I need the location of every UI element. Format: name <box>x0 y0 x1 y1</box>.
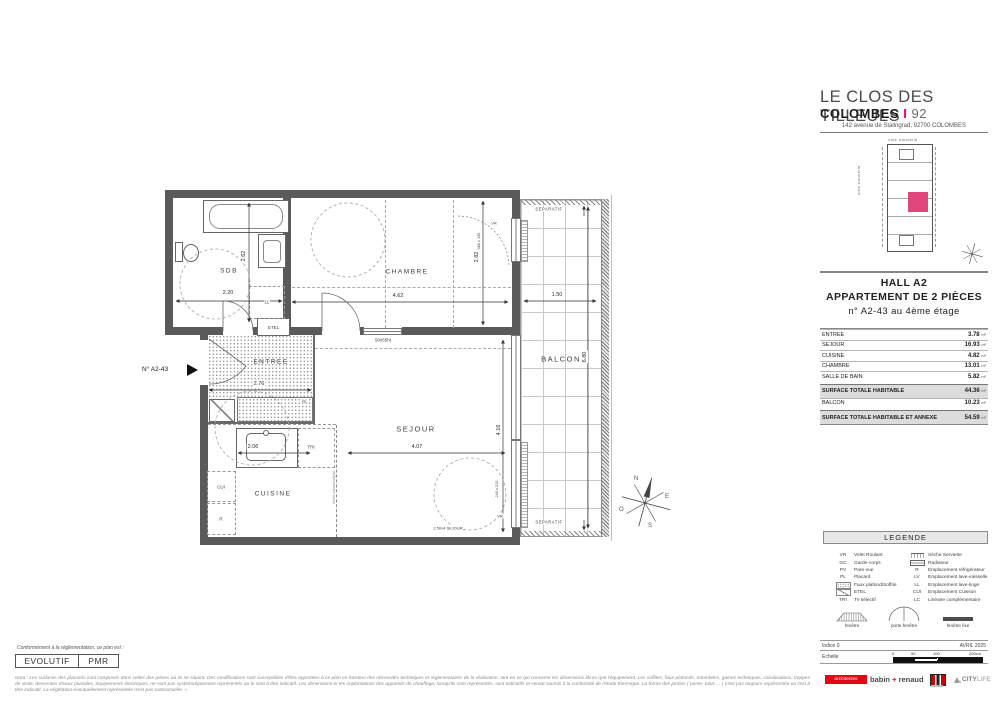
city-name: COLOMBES <box>820 106 899 121</box>
room-label-cuisine: CUISINE <box>255 491 292 498</box>
row-label: CHAMBRE <box>822 363 850 369</box>
tag-vr: VR <box>491 221 498 226</box>
table-row-total: SURFACE TOTALE HABITABLE ET ANNEXE54.59 … <box>820 410 988 424</box>
plan-sheet: ETEL <box>0 0 1000 707</box>
room-label-balcon: BALCON <box>541 355 581 364</box>
scale-bar: 0 50 100 200cm <box>892 651 987 664</box>
road-label-top: voie nouvelle <box>888 137 918 142</box>
row-label: SURFACE TOTALE HABITABLE <box>822 388 904 394</box>
row-value: 44.36 <box>965 388 980 394</box>
dept-number: 92 <box>912 106 927 121</box>
road-label-left: voie nouvelle <box>856 165 861 195</box>
program-city: COLOMBES I 92 <box>820 106 988 121</box>
legend-window: porte fenêtre <box>880 606 928 628</box>
table-row: CHAMBRE13.01 m² <box>820 361 988 372</box>
scale-tick: 200cm <box>969 651 981 656</box>
row-value: 16.93 <box>965 342 980 348</box>
indice-row: Indice 0 AVRIL 2025 <box>820 640 988 651</box>
building-core <box>899 149 914 160</box>
legend-item: LCLinéaire complémentaire <box>906 596 990 603</box>
legend-item: CUIEmplacement Cuisson <box>906 589 990 596</box>
area-table: ENTREE3.78 m² SEJOUR16.93 m² CUISINE4.82… <box>820 328 988 425</box>
compliance-box: EVOLUTIF PMR <box>15 654 119 668</box>
tag-window-int: 50x55ht <box>374 338 391 343</box>
room-label-sejour: SEJOUR <box>396 425 435 434</box>
table-row: SALLE DE BAIN5.82 m² <box>820 371 988 382</box>
babin-renaud-logo: babin + renaud <box>870 675 924 684</box>
unit-marker-label: N° A2-43 <box>142 366 168 373</box>
hall-label: HALL A2 <box>820 277 988 289</box>
row-label: BALCON <box>822 400 845 406</box>
dim-label: 2.76 <box>253 381 266 387</box>
tag-vr: VR <box>497 514 504 519</box>
etel-icon <box>836 589 851 596</box>
row-value: 4.82 <box>968 353 980 359</box>
dim-label: 1.50 <box>551 292 564 298</box>
row-value: 13.01 <box>965 363 980 369</box>
echelle-label: Echelle <box>822 654 838 660</box>
dim-label: 4.16 <box>496 424 502 437</box>
table-row: ENTREE3.78 m² <box>820 329 988 340</box>
legend-window-label: fenêtre fixe <box>934 623 982 628</box>
row-value: 10.23 <box>965 400 980 406</box>
tag-window-sejour: 2.50x4 SEJOUR <box>433 526 463 531</box>
tag-window-dim: 240 x 215 <box>495 480 499 498</box>
apartment-number: n° A2-43 au 4ème étage <box>820 306 988 317</box>
architectes-logo: architectes <box>825 675 867 684</box>
logo-row: architectes babin + renaud CITYLIFE <box>825 673 988 689</box>
room-label-entree: ENTREE <box>253 359 288 366</box>
city-separator: I <box>903 106 907 121</box>
legend-item: Radiateur <box>906 559 990 566</box>
tag-tri: TRI <box>307 445 315 450</box>
dim-label: 6.80 <box>582 351 588 364</box>
scale-tick: 0 <box>892 651 894 656</box>
date-label: AVRIL 2025 <box>960 643 986 649</box>
room-label-chambre: CHAMBRE <box>385 269 428 276</box>
nota-text: Nota : Les surfaces des placards sont co… <box>15 676 810 695</box>
tag-r: R <box>219 517 223 522</box>
row-value: 5.82 <box>968 374 980 380</box>
tag-window-dim: 060 x 195 <box>477 232 481 250</box>
compass-s: S <box>648 523 652 529</box>
seche-serviette-icon <box>911 553 924 558</box>
partner-logo-subtext <box>931 685 943 687</box>
apartment-type: APPARTEMENT DE 2 PIÈCES <box>820 291 988 303</box>
title-panel: LE CLOS DES TILLEULS COLOMBES I 92 142 a… <box>820 80 988 690</box>
row-label: SEJOUR <box>822 342 844 348</box>
row-value: 3.78 <box>968 332 980 338</box>
dim-label: 2.62 <box>241 250 247 263</box>
scale-bar-segments <box>893 657 983 663</box>
citylife-mountain-icon <box>953 675 962 684</box>
faux-plafond-icon <box>836 582 851 589</box>
table-row: SEJOUR16.93 m² <box>820 340 988 351</box>
indice-label: Indice 0 <box>822 643 840 649</box>
fenetre-fixe-icon <box>943 617 973 621</box>
plus-icon: + <box>892 675 896 684</box>
row-label: ENTREE <box>822 332 844 338</box>
compass-n: N <box>634 476 638 482</box>
divider <box>820 271 988 273</box>
scale-tick: 50 <box>911 651 915 656</box>
compliance-intro: Conformément à la réglementation, ce pla… <box>17 645 124 651</box>
row-label: CUISINE <box>822 353 844 359</box>
legend-title: LEGENDE <box>823 531 988 544</box>
legend-window-label: porte fenêtre <box>880 623 928 628</box>
table-row-total: SURFACE TOTALE HABITABLE44.36 m² <box>820 384 988 398</box>
dim-label: 2.06 <box>247 444 260 450</box>
building-balconies-left <box>882 147 883 247</box>
dim-label: 2.82 <box>474 251 480 264</box>
dim-label: 4.62 <box>392 293 405 299</box>
tag-ll: LL <box>264 300 270 305</box>
tag-pl: PL <box>302 400 309 405</box>
building-balconies-right <box>935 147 936 247</box>
compliance-pmr: PMR <box>79 655 118 667</box>
tag-separatif-top: SEPARATIF <box>535 207 563 212</box>
compass-rose <box>616 472 677 533</box>
room-label-sdb: SDB <box>220 268 238 275</box>
legend-item: LLEmplacement lave-linge <box>906 582 990 589</box>
site-plan: voie nouvelle voie nouvelle <box>820 135 988 268</box>
divider <box>820 132 988 133</box>
scale-tick: 100 <box>933 651 940 656</box>
legend-right-column: Sèche Serviette Radiateur REmplacement r… <box>906 552 990 604</box>
mini-compass <box>958 240 986 268</box>
radiateur-icon <box>910 560 925 566</box>
tag-limit: limite cuisine/séjour <box>332 470 336 504</box>
row-value: 54.59 <box>965 415 980 421</box>
compass-o: O <box>619 507 624 513</box>
dim-label: 2.20 <box>222 290 235 296</box>
fenetre-icon <box>834 610 870 622</box>
legend-item: LVEmplacement lave-vaisselle <box>906 574 990 581</box>
building-core <box>899 235 914 246</box>
program-address: 142 avenue de Stalingrad, 92700 COLOMBES <box>820 123 988 129</box>
citylife-logo: CITYLIFE <box>953 675 991 684</box>
dim-label: 4.07 <box>411 444 424 450</box>
row-label: SURFACE TOTALE HABITABLE ET ANNEXE <box>822 415 937 421</box>
row-label: SALLE DE BAIN <box>822 374 863 380</box>
entry-arrow-icon <box>187 364 198 376</box>
table-row: BALCON10.23 m² <box>820 398 988 409</box>
tag-cui: CUI <box>217 485 226 490</box>
porte-fenetre-icon <box>886 606 922 622</box>
legend-item: Sèche Serviette <box>906 552 990 559</box>
table-row: CUISINE4.82 m² <box>820 350 988 361</box>
compass-e: E <box>665 494 669 500</box>
legend-window-label: fenêtre <box>828 623 876 628</box>
compliance-evolutif: EVOLUTIF <box>16 655 79 667</box>
unit-highlight <box>908 192 928 212</box>
legend-window: fenêtre <box>828 610 876 628</box>
legend-window: fenêtre fixe <box>934 613 982 628</box>
tag-separatif-bottom: SEPARATIF <box>535 520 563 525</box>
legend-item: REmplacement réfrigérateur <box>906 567 990 574</box>
